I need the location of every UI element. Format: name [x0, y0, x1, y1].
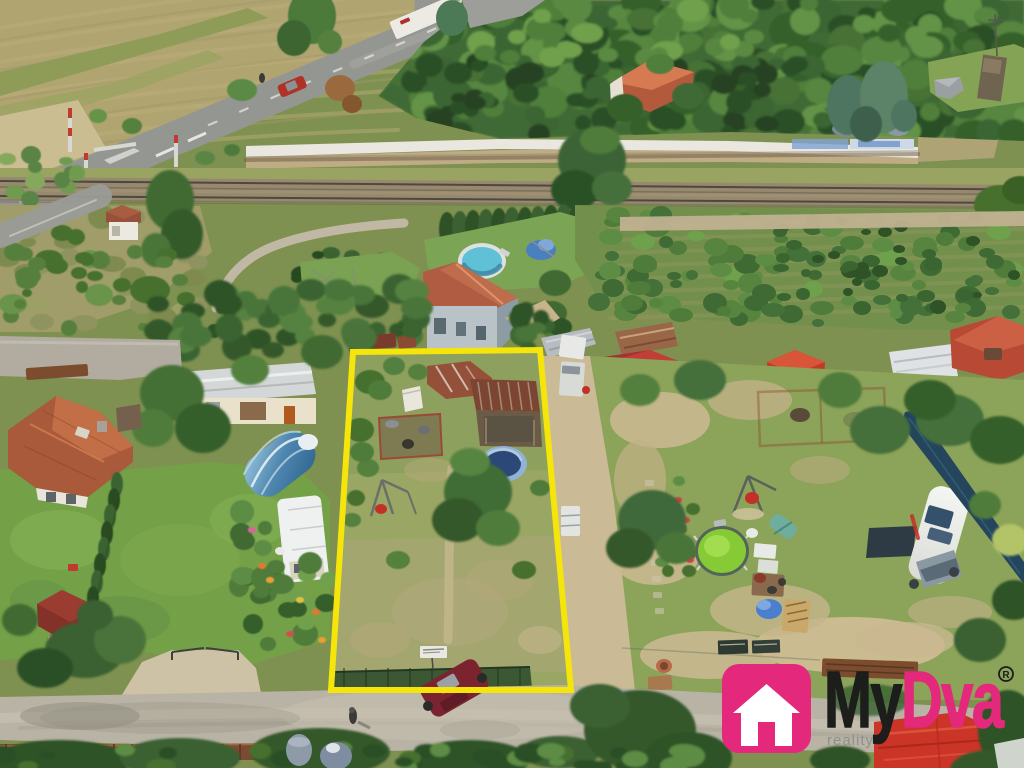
svg-text:R: R	[1002, 670, 1010, 681]
svg-text:MyDva: MyDva	[824, 655, 1005, 745]
svg-text:reality: reality	[827, 732, 874, 749]
